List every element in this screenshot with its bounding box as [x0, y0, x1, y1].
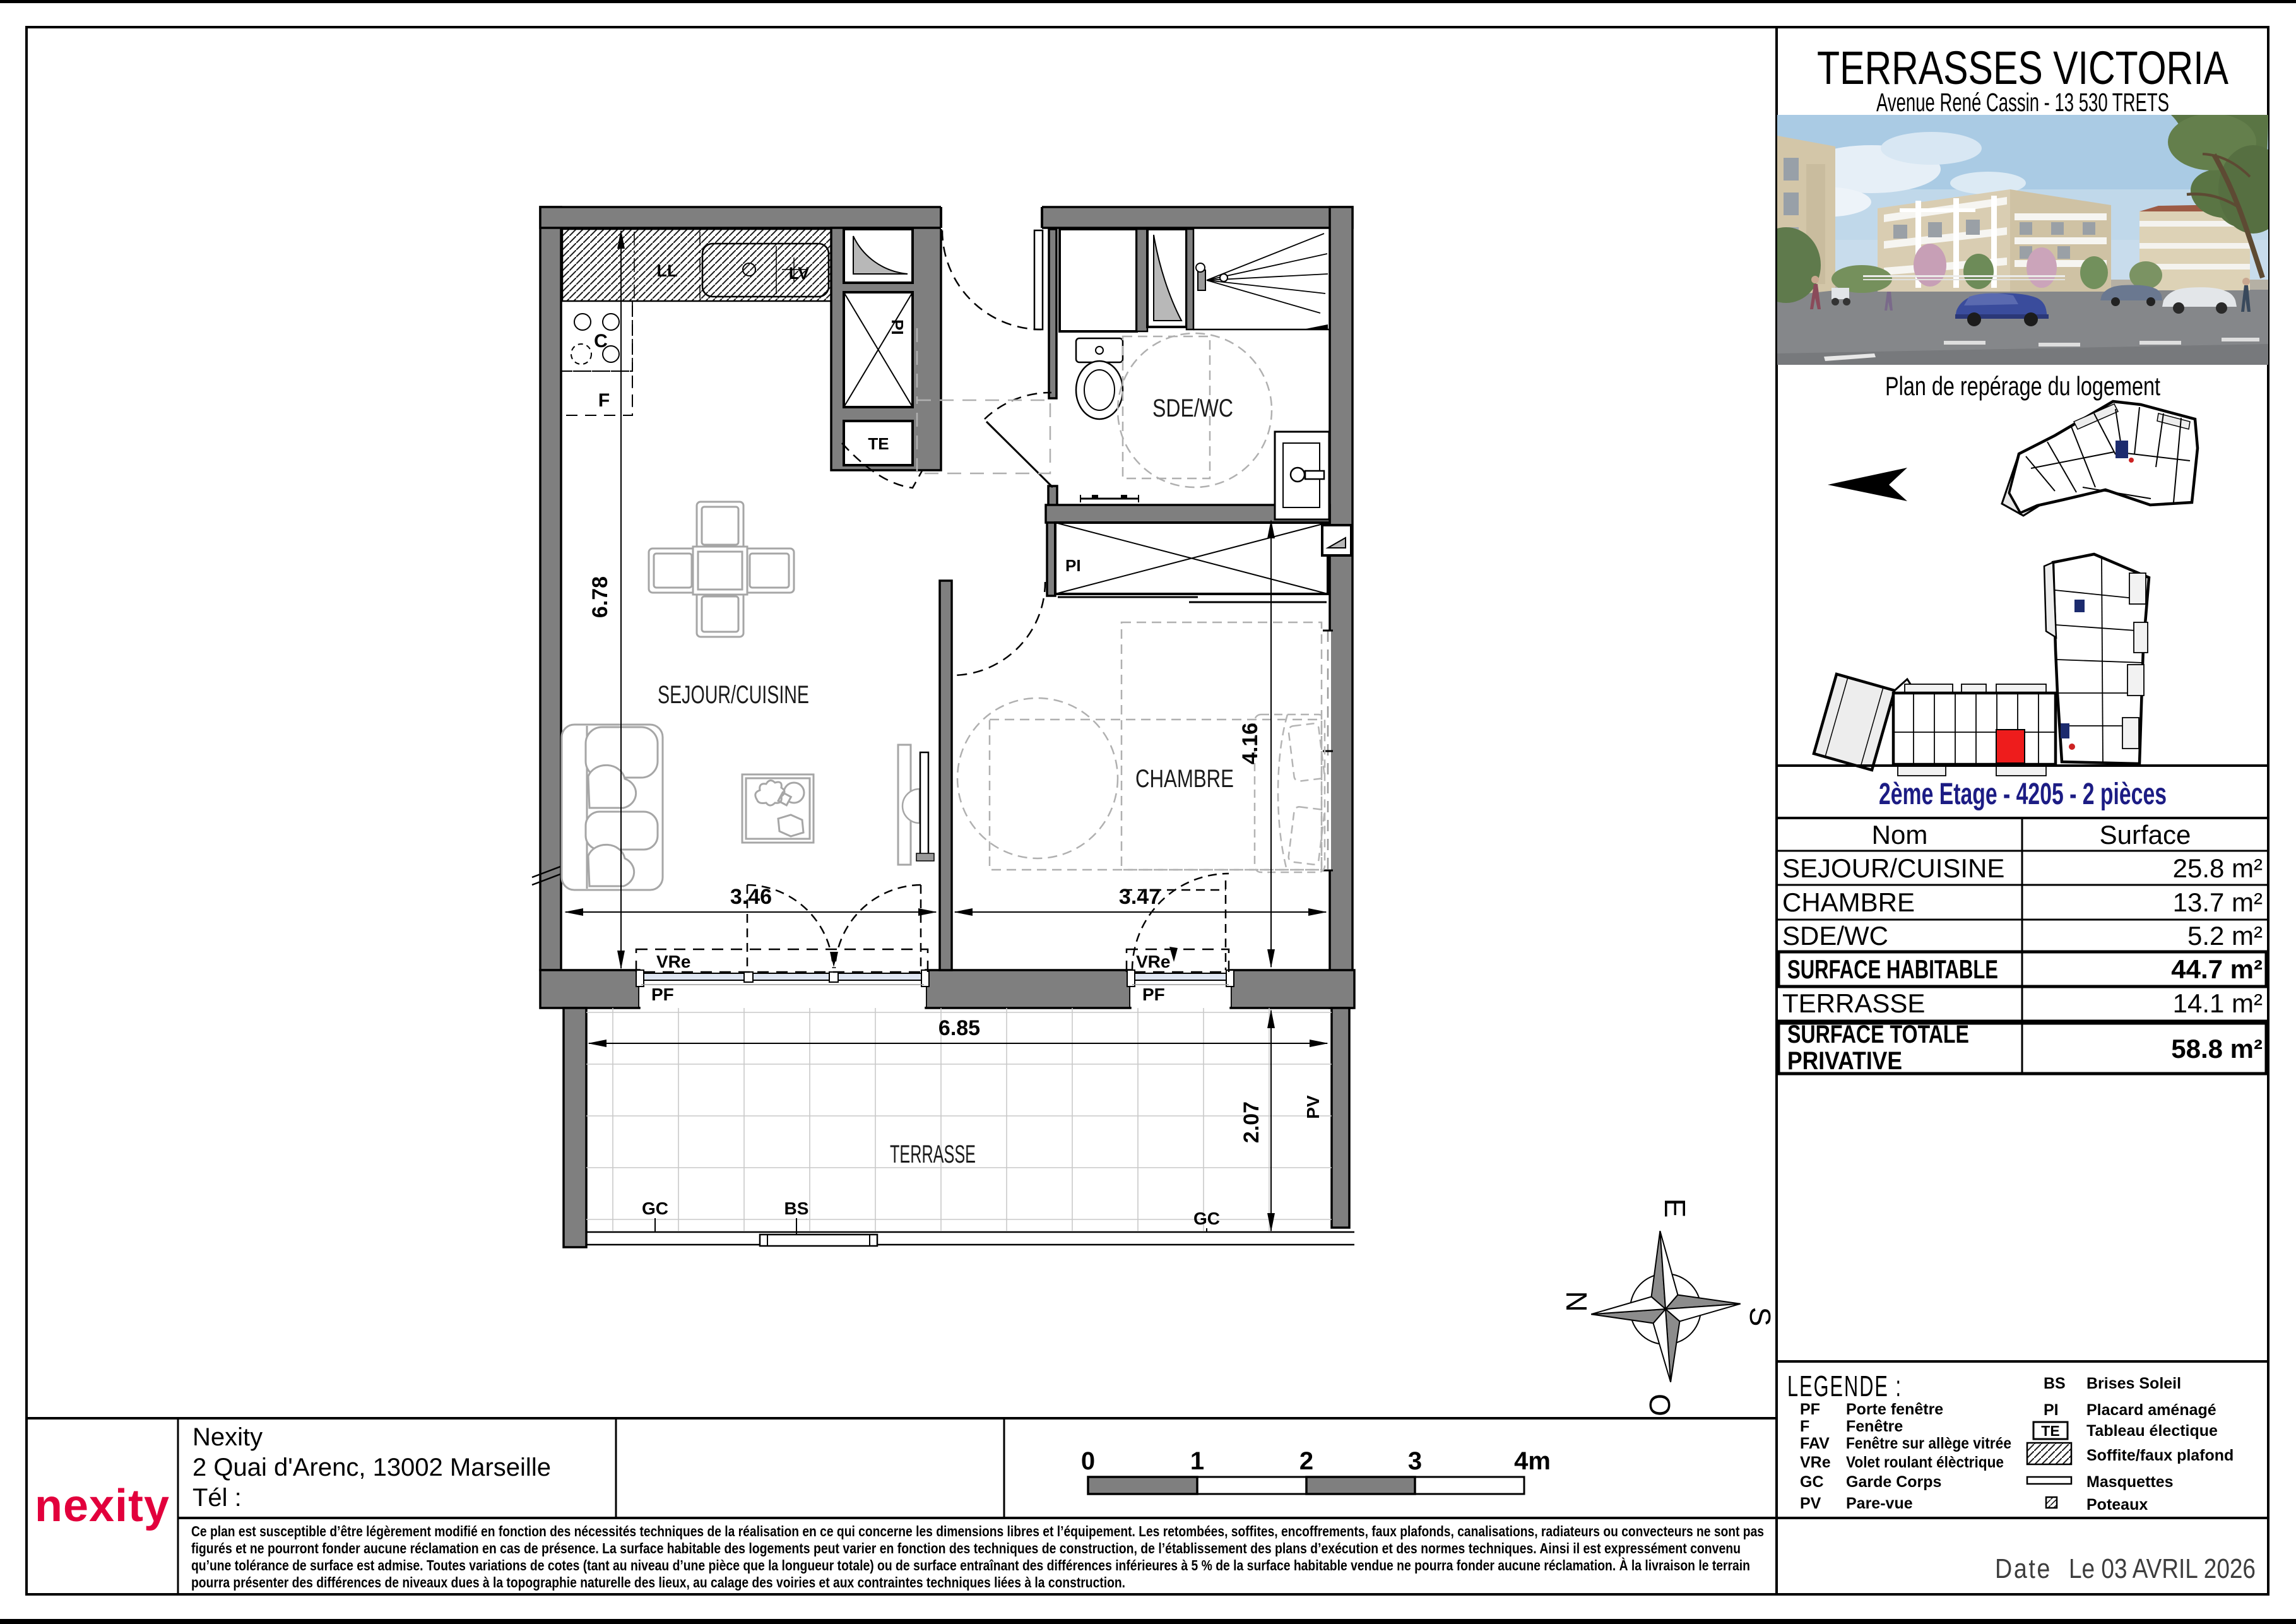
svg-text:SURFACE TOTALE: SURFACE TOTALE	[1787, 1021, 1969, 1048]
svg-text:GC: GC	[1193, 1209, 1220, 1228]
svg-text:Pare-vue: Pare-vue	[1846, 1495, 1913, 1512]
svg-text:SURFACE HABITABLE: SURFACE HABITABLE	[1787, 954, 1998, 984]
svg-text:pourra présenter des différenc: pourra présenter des différences de nive…	[191, 1574, 1125, 1591]
svg-text:LV: LV	[789, 264, 810, 283]
svg-text:E: E	[1659, 1199, 1691, 1218]
svg-text:Brises Soleil: Brises Soleil	[2086, 1375, 2181, 1392]
svg-text:VRe: VRe	[656, 952, 690, 971]
svg-text:Tableau électique: Tableau électique	[2086, 1422, 2218, 1440]
svg-text:PI: PI	[888, 319, 907, 335]
svg-text:2.07: 2.07	[1240, 1101, 1263, 1143]
svg-text:LL: LL	[657, 261, 678, 280]
svg-text:Masquettes: Masquettes	[2086, 1473, 2174, 1491]
svg-text:nexity: nexity	[35, 1481, 170, 1531]
svg-text:Placard aménagé: Placard aménagé	[2086, 1401, 2216, 1419]
svg-text:Fenêtre: Fenêtre	[1846, 1418, 1903, 1435]
svg-text:O: O	[1643, 1394, 1676, 1416]
svg-text:PI: PI	[1065, 556, 1081, 575]
svg-text:C: C	[594, 331, 608, 352]
svg-text:F: F	[1800, 1418, 1809, 1435]
svg-text:PF: PF	[651, 985, 674, 1004]
svg-text:Le 03 AVRIL 2026: Le 03 AVRIL 2026	[2069, 1553, 2256, 1584]
svg-text:PRIVATIVE: PRIVATIVE	[1787, 1047, 1902, 1075]
svg-text:CHAMBRE: CHAMBRE	[1782, 887, 1915, 917]
svg-text:Avenue René Cassin - 13 530 TR: Avenue René Cassin - 13 530 TRETS	[1876, 88, 2169, 117]
svg-text:PF: PF	[1800, 1401, 1820, 1418]
svg-text:PI: PI	[2044, 1401, 2059, 1419]
svg-text:SEJOUR/CUISINE: SEJOUR/CUISINE	[1782, 853, 2004, 883]
svg-text:Garde Corps: Garde Corps	[1846, 1473, 1941, 1491]
svg-text:44.7 m²: 44.7 m²	[2171, 954, 2263, 984]
svg-text:3: 3	[1408, 1447, 1422, 1475]
svg-text:Porte fenêtre: Porte fenêtre	[1846, 1401, 1943, 1418]
svg-text:Tél :: Tél :	[192, 1484, 242, 1512]
svg-text:6.85: 6.85	[938, 1016, 980, 1040]
svg-text:TERRASSE: TERRASSE	[1782, 988, 1925, 1018]
svg-text:2 Quai d'Arenc, 13002 Marseill: 2 Quai d'Arenc, 13002 Marseille	[192, 1454, 551, 1481]
svg-text:58.8 m²: 58.8 m²	[2171, 1034, 2263, 1064]
svg-text:FAV: FAV	[1800, 1435, 1830, 1452]
svg-text:Nom: Nom	[1872, 820, 1928, 850]
svg-text:qu’une tolérance de surface es: qu’une tolérance de surface est admise. …	[191, 1556, 1750, 1574]
svg-text:BS: BS	[784, 1199, 809, 1218]
svg-text:GC: GC	[642, 1199, 668, 1218]
svg-text:BS: BS	[2044, 1375, 2066, 1392]
svg-text:13.7 m²: 13.7 m²	[2173, 887, 2263, 917]
svg-text:Date: Date	[1995, 1553, 2052, 1584]
svg-text:25.8 m²: 25.8 m²	[2173, 853, 2263, 883]
svg-text:2ème Etage - 4205 - 2 pièces: 2ème Etage - 4205 - 2 pièces	[1879, 778, 2167, 811]
svg-text:Volet roulant élèctrique: Volet roulant élèctrique	[1846, 1454, 2004, 1471]
svg-text:VRe: VRe	[1800, 1454, 1831, 1471]
svg-text:F: F	[598, 390, 610, 411]
svg-text:14.1 m²: 14.1 m²	[2173, 988, 2263, 1018]
svg-text:S: S	[1744, 1307, 1777, 1327]
svg-text:Nexity: Nexity	[192, 1423, 263, 1451]
svg-text:VRe: VRe	[1136, 952, 1170, 971]
svg-text:CHAMBRE: CHAMBRE	[1135, 765, 1234, 793]
svg-text:Surface: Surface	[2100, 820, 2191, 850]
svg-text:4m: 4m	[1514, 1447, 1551, 1475]
svg-text:1: 1	[1190, 1447, 1204, 1475]
svg-text:N: N	[1560, 1291, 1593, 1312]
svg-text:PF: PF	[1142, 985, 1165, 1004]
svg-text:TE: TE	[868, 434, 889, 453]
svg-text:3.46: 3.46	[730, 885, 772, 909]
svg-text:PV: PV	[1303, 1095, 1323, 1119]
svg-text:Soffite/faux plafond: Soffite/faux plafond	[2086, 1447, 2234, 1464]
svg-text:Ce plan est susceptible d’être: Ce plan est susceptible d’être légèremen…	[191, 1523, 1764, 1539]
svg-text:Poteaux: Poteaux	[2086, 1496, 2148, 1514]
svg-text:5.2 m²: 5.2 m²	[2187, 921, 2263, 951]
svg-text:TERRASSES VICTORIA: TERRASSES VICTORIA	[1817, 42, 2229, 94]
svg-text:TE: TE	[2041, 1423, 2059, 1439]
svg-text:6.78: 6.78	[588, 576, 612, 618]
svg-text:3.47: 3.47	[1119, 885, 1161, 909]
svg-text:GC: GC	[1800, 1473, 1824, 1491]
svg-text:2: 2	[1299, 1447, 1313, 1475]
svg-text:TERRASSE: TERRASSE	[890, 1141, 976, 1168]
svg-text:PV: PV	[1800, 1495, 1821, 1512]
svg-text:SEJOUR/CUISINE: SEJOUR/CUISINE	[658, 681, 809, 709]
svg-text:SDE/WC: SDE/WC	[1152, 394, 1233, 422]
svg-text:Plan de repérage du logement: Plan de repérage du logement	[1885, 371, 2160, 401]
svg-text:figurés et ne pourront fonder: figurés et ne pourront fonder aucune réc…	[191, 1540, 1741, 1556]
svg-text:SDE/WC: SDE/WC	[1782, 921, 1888, 951]
svg-text:Fenêtre sur allège vitrée: Fenêtre sur allège vitrée	[1846, 1435, 2011, 1452]
svg-text:4.16: 4.16	[1238, 723, 1262, 764]
svg-text:0: 0	[1081, 1447, 1095, 1475]
svg-text:LEGENDE :: LEGENDE :	[1787, 1370, 1902, 1402]
